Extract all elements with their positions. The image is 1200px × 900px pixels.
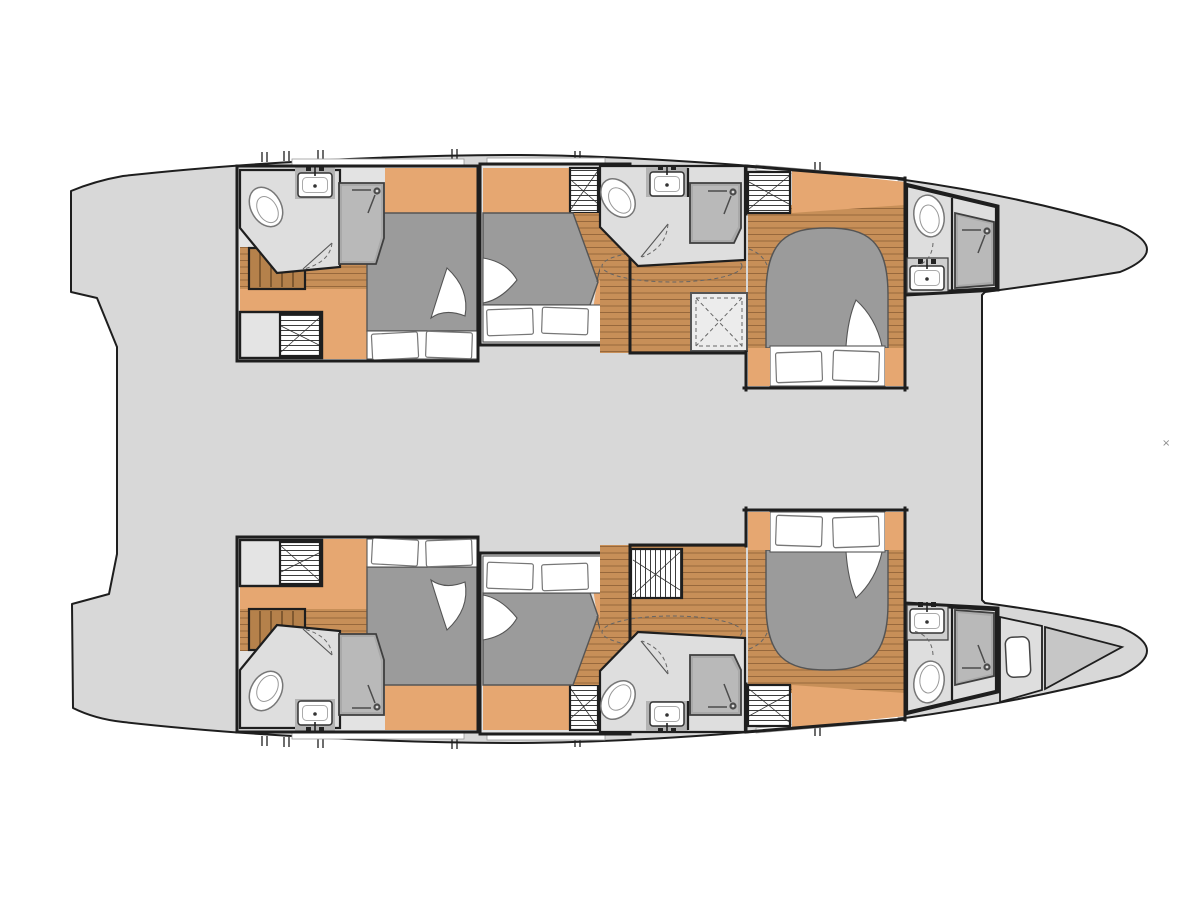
pillow [832,350,879,381]
pillow [542,307,589,335]
pillow [775,351,822,382]
sink-icon [298,173,332,197]
wood-floor [748,512,770,550]
bed-head-locker [385,684,478,730]
starboard-fwd-cabin [744,508,907,732]
wood-floor [885,512,905,550]
deck-plan [0,0,1200,900]
sink-icon [650,702,684,726]
pillow [775,515,822,546]
pillow [542,563,589,591]
wood-floor [748,348,770,386]
shower-pan [342,186,381,261]
port-fwd-cabin [744,166,907,390]
watermark-x: × [1162,438,1170,449]
pillow [832,516,879,547]
port-aft-cabin [237,166,478,361]
bed-head-locker [483,168,570,213]
sink-icon [650,172,684,196]
pillow [371,538,418,566]
sink-icon [910,609,944,633]
pillow [487,562,534,590]
wood-floor [885,348,905,386]
bed-head-locker [483,685,570,730]
shower-pan [342,637,381,712]
starboard-aft-cabin [237,537,478,732]
forepeak-cushion [1005,636,1031,677]
pillow [426,539,473,567]
shower-pan [958,613,991,682]
sink-icon [298,701,332,725]
sink-icon [910,266,944,290]
deck-hatch [691,293,747,351]
pillow [487,308,534,336]
pillow [371,332,418,360]
shower-pan [958,216,991,285]
bed-head-locker [385,168,478,214]
pillow [426,331,473,359]
